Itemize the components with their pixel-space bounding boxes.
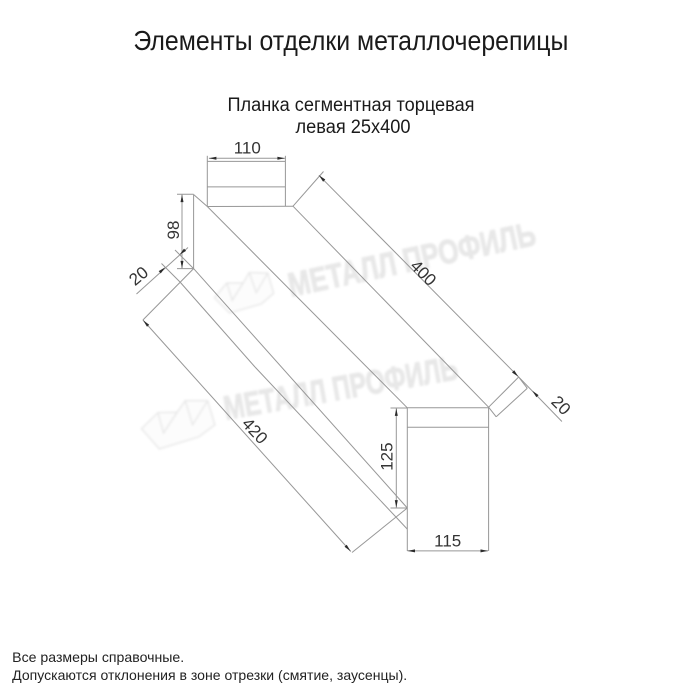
svg-text:110: 110: [234, 139, 261, 158]
svg-text:Допускаются отклонения в зоне: Допускаются отклонения в зоне отрезки (с…: [12, 667, 407, 683]
svg-text:125: 125: [378, 442, 397, 470]
svg-text:115: 115: [434, 532, 461, 551]
svg-text:Планка сегментная торцевая: Планка сегментная торцевая: [228, 95, 475, 116]
svg-text:левая 25х400: левая 25х400: [296, 117, 411, 138]
svg-text:98: 98: [164, 221, 183, 240]
svg-text:Элементы отделки металлочерепи: Элементы отделки металлочерепицы: [133, 25, 568, 56]
svg-text:Все размеры справочные.: Все размеры справочные.: [12, 649, 184, 665]
